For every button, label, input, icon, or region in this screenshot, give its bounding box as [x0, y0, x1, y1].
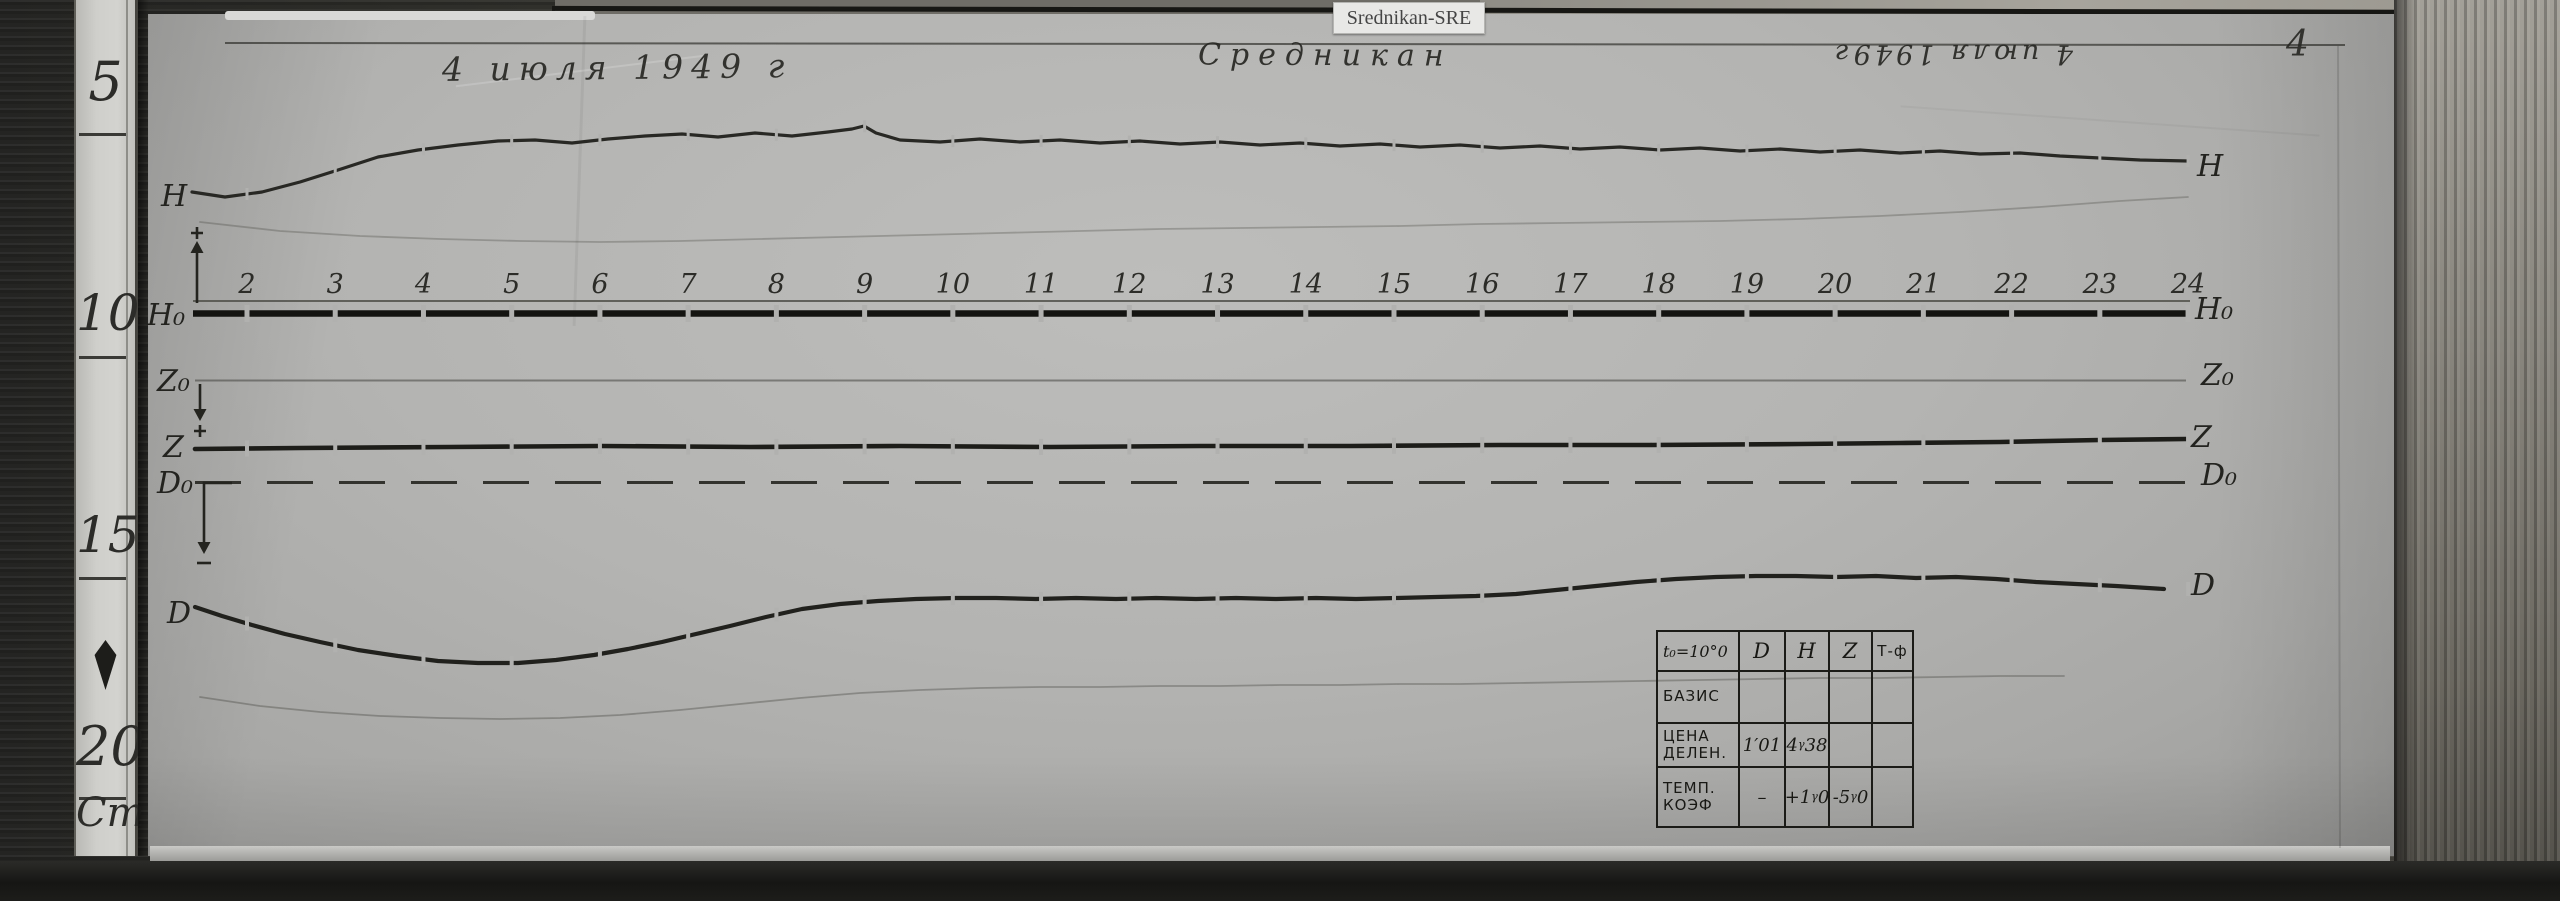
- ruler: 5 10 15 20 Cm: [74, 0, 138, 856]
- table-cell: [1873, 724, 1912, 768]
- trace-label-z-right: Z: [2191, 420, 2212, 455]
- trace-label-d-left: D: [167, 596, 191, 631]
- ruler-mark-15: 15: [76, 510, 135, 560]
- ruler-divider: [79, 133, 126, 136]
- date-annotation-left: 4 июля 1949 г: [442, 46, 793, 89]
- chart-paper: [148, 14, 2394, 856]
- hour-label: 16: [1465, 269, 1499, 300]
- table-cell: –: [1740, 768, 1786, 826]
- sheet-number: 4: [2286, 24, 2309, 65]
- hour-label: 15: [1377, 269, 1411, 300]
- trace-label-d-right: D: [2191, 568, 2215, 603]
- table-cell: 4γ38: [1786, 724, 1830, 768]
- trace-label-d0-left: D₀: [157, 466, 193, 501]
- paper-edge-shadow: [2394, 0, 2416, 901]
- hour-label: 11: [1024, 269, 1058, 300]
- table-cell: [1830, 724, 1873, 768]
- table-header-cell: H: [1786, 632, 1830, 672]
- hour-label: 6: [591, 269, 608, 300]
- hour-label: 19: [1730, 269, 1764, 300]
- photo-label: Srednikan-SRE: [1333, 2, 1485, 34]
- table-cell: [1786, 672, 1830, 724]
- table-cell: [1830, 672, 1873, 724]
- trace-label-z-left: Z: [163, 430, 184, 465]
- ruler-divider: [79, 577, 126, 580]
- table-header-cell: t₀=10°0: [1658, 632, 1740, 672]
- wood-bottom-strip: [0, 861, 2560, 901]
- ruler-divider: [79, 356, 126, 359]
- calibration-table: t₀=10°0DHZТ-фБАЗИСЦЕНАДЕЛЕН.1′014γ38ТЕМП…: [1656, 630, 1914, 828]
- hour-label: 7: [680, 269, 697, 300]
- trace-label-d0-right: D₀: [2201, 458, 2237, 493]
- diamond-icon: [93, 640, 119, 690]
- hour-label: 14: [1289, 269, 1323, 300]
- paper-bottom-edge: [150, 846, 2390, 861]
- ruler-shadow: [138, 0, 149, 856]
- hour-label: 20: [1818, 269, 1852, 300]
- table-cell: ТЕМП.КОЭФ: [1658, 768, 1740, 826]
- trace-label-h-right: H: [2197, 149, 2223, 184]
- table-cell: [1740, 672, 1786, 724]
- ruler-mark-5: 5: [76, 55, 135, 109]
- table-cell: +1γ0: [1786, 768, 1830, 826]
- date-annotation-right: 4 июля 1949г: [1891, 38, 2073, 69]
- table-cell: ЦЕНАДЕЛЕН.: [1658, 724, 1740, 768]
- hour-label: 2: [238, 269, 255, 300]
- table-cell: 1′01: [1740, 724, 1786, 768]
- hour-label: 21: [1906, 269, 1940, 300]
- hour-label: 22: [1994, 269, 2028, 300]
- hour-label: 4: [415, 269, 432, 300]
- table-cell: [1873, 768, 1912, 826]
- hour-label: 17: [1553, 269, 1587, 300]
- hour-label: 9: [856, 269, 873, 300]
- table-header-cell: Т-ф: [1873, 632, 1912, 672]
- table-header-cell: Z: [1830, 632, 1873, 672]
- hour-label: 18: [1641, 269, 1675, 300]
- station-title: Средникан: [1198, 37, 1453, 73]
- table-cell: БАЗИС: [1658, 672, 1740, 724]
- hour-label: 3: [327, 269, 344, 300]
- ruler-mark-10: 10: [76, 288, 135, 338]
- trace-label-h0-left: H₀: [147, 298, 185, 333]
- hour-label: 10: [936, 269, 970, 300]
- trace-label-z0-left: Z₀: [157, 364, 190, 399]
- hour-label: 8: [768, 269, 785, 300]
- table-cell: [1873, 672, 1912, 724]
- paper-top-edge: [225, 11, 595, 20]
- hour-label: 23: [2083, 269, 2117, 300]
- table-cell: -5γ0: [1830, 768, 1873, 826]
- ruler-unit: Cm: [76, 793, 135, 833]
- ruler-mark-20: 20: [76, 720, 135, 774]
- wood-right-column: [2394, 0, 2560, 901]
- hour-label: 12: [1112, 269, 1146, 300]
- hour-label: 5: [503, 269, 520, 300]
- trace-label-h0-right: H₀: [2195, 292, 2233, 327]
- hour-label: 13: [1200, 269, 1234, 300]
- trace-label-z0-right: Z₀: [2201, 358, 2234, 393]
- magnetogram-photo: Srednikan-SRE 4 июля 1949 г Средникан 4 …: [0, 0, 2560, 901]
- table-header-cell: D: [1740, 632, 1786, 672]
- trace-label-h-left: H: [161, 179, 187, 214]
